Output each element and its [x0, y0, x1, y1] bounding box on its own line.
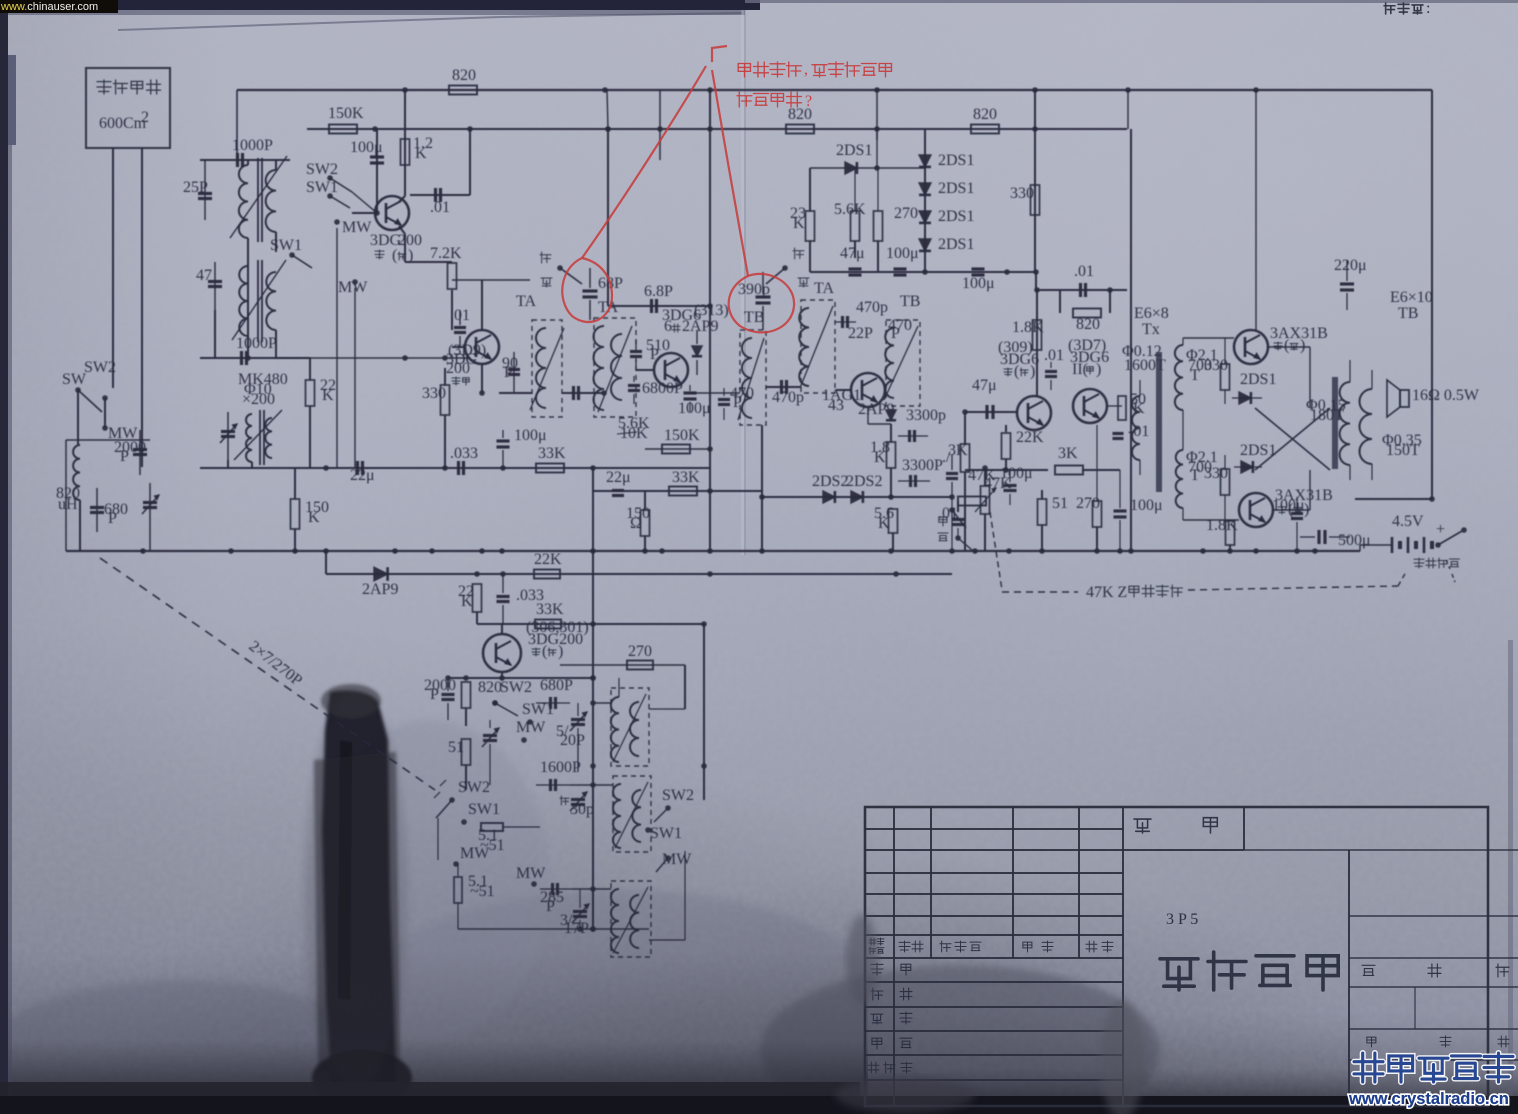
svg-text:1.8K: 1.8K — [1206, 517, 1238, 534]
svg-text:E6×8: E6×8 — [1134, 305, 1169, 322]
svg-text:33K: 33K — [672, 469, 700, 486]
svg-text:~51: ~51 — [470, 883, 495, 900]
svg-text:2DS1: 2DS1 — [938, 152, 974, 169]
svg-text:(: ( — [542, 643, 547, 660]
svg-text:.01: .01 — [1044, 347, 1064, 364]
svg-text:2000: 2000 — [114, 439, 146, 456]
svg-text:22K: 22K — [534, 551, 562, 568]
svg-text:51: 51 — [1052, 495, 1068, 512]
svg-text:Ω: Ω — [630, 515, 642, 532]
svg-text:TB: TB — [744, 309, 764, 326]
svg-text:.01: .01 — [1074, 263, 1094, 280]
svg-text:T: T — [1190, 467, 1200, 484]
svg-text:3300p: 3300p — [906, 407, 946, 424]
svg-text:SW2: SW2 — [458, 779, 490, 796]
svg-text:?: ? — [805, 93, 812, 110]
svg-text:-01: -01 — [1128, 423, 1149, 440]
svg-text:www.chinauser.com: www.chinauser.com — [0, 1, 98, 13]
svg-text:P: P — [108, 510, 117, 527]
svg-text:SW2: SW2 — [84, 359, 116, 376]
svg-text::: : — [1426, 0, 1430, 17]
svg-text:uH: uH — [58, 496, 78, 513]
svg-text:MW: MW — [460, 845, 490, 862]
svg-text:(: ( — [392, 247, 397, 264]
svg-text:): ) — [1096, 361, 1101, 378]
svg-text:3K: 3K — [948, 442, 968, 459]
svg-text:7.2K: 7.2K — [430, 245, 462, 262]
svg-text:6800P: 6800P — [642, 380, 683, 397]
svg-text:2DS1: 2DS1 — [1240, 371, 1276, 388]
svg-text:E6×10: E6×10 — [1390, 289, 1433, 306]
svg-text:SW2: SW2 — [662, 787, 694, 804]
svg-text:220μ: 220μ — [1334, 257, 1367, 274]
svg-text:150T: 150T — [1386, 442, 1420, 459]
svg-text:100μ: 100μ — [350, 139, 383, 156]
svg-text:): ) — [558, 643, 563, 660]
svg-text:K: K — [1133, 400, 1145, 417]
svg-text:330: 330 — [1010, 185, 1034, 202]
svg-text:): ) — [1030, 363, 1035, 380]
svg-text:51: 51 — [448, 739, 464, 756]
svg-text:(313): (313) — [694, 302, 729, 319]
svg-text:2DS1: 2DS1 — [836, 142, 872, 159]
svg-text:3AX31B: 3AX31B — [1270, 325, 1328, 342]
svg-text:33K: 33K — [536, 601, 564, 618]
svg-text:3K: 3K — [1058, 445, 1078, 462]
svg-text:820: 820 — [478, 679, 502, 696]
svg-text:5.6K: 5.6K — [834, 201, 866, 218]
svg-text:MW: MW — [516, 865, 546, 882]
svg-text:4.5V: 4.5V — [1392, 513, 1424, 530]
svg-text:100μ: 100μ — [962, 275, 995, 292]
svg-text:K: K — [461, 593, 473, 610]
svg-text:100μ: 100μ — [1130, 497, 1163, 514]
svg-text:200: 200 — [446, 360, 470, 377]
svg-text:470p: 470p — [772, 389, 804, 406]
svg-text:16Ω 0.5W: 16Ω 0.5W — [1412, 387, 1480, 404]
svg-text:22K: 22K — [1016, 429, 1044, 446]
svg-text:2DS2: 2DS2 — [846, 473, 882, 490]
svg-text:2AP9: 2AP9 — [682, 318, 718, 335]
svg-text:2DS2: 2DS2 — [812, 473, 848, 490]
svg-text:150K: 150K — [328, 105, 364, 122]
svg-text:TA: TA — [516, 293, 536, 310]
svg-text:II(: II( — [1072, 361, 1088, 378]
svg-text:www.crystalradio.cn: www.crystalradio.cn — [1348, 1090, 1509, 1108]
svg-text:100μ: 100μ — [514, 427, 547, 444]
svg-text:47: 47 — [196, 267, 212, 284]
svg-text:3DG200: 3DG200 — [528, 631, 583, 648]
svg-text:47μ: 47μ — [972, 377, 997, 394]
svg-text:K: K — [308, 509, 320, 526]
svg-text:20P: 20P — [560, 732, 585, 749]
svg-text:33K: 33K — [538, 445, 566, 462]
svg-text:,: , — [804, 61, 808, 78]
svg-text:22P: 22P — [848, 325, 873, 342]
svg-text:270: 270 — [628, 643, 652, 660]
svg-text:SW2: SW2 — [500, 679, 532, 696]
svg-text:P: P — [891, 325, 900, 342]
svg-text:MW: MW — [342, 219, 372, 236]
svg-text:47K Z: 47K Z — [1086, 584, 1127, 601]
svg-text:600Cm: 600Cm — [99, 115, 147, 132]
svg-text:1600P: 1600P — [540, 759, 581, 776]
svg-text:2DS1: 2DS1 — [938, 208, 974, 225]
svg-text:43: 43 — [828, 397, 844, 414]
svg-text:330: 330 — [422, 385, 446, 402]
svg-text:P: P — [504, 364, 513, 381]
svg-text:47μ: 47μ — [840, 245, 865, 262]
svg-text:6.8P: 6.8P — [644, 283, 673, 300]
svg-text:.01: .01 — [430, 199, 450, 216]
svg-text:22μ: 22μ — [606, 469, 631, 486]
svg-text:P: P — [430, 686, 439, 703]
svg-text:820: 820 — [973, 106, 997, 123]
svg-text:3300P: 3300P — [902, 457, 943, 474]
svg-text:2000: 2000 — [424, 677, 456, 694]
svg-text:×200: ×200 — [242, 391, 275, 408]
svg-text:K: K — [415, 145, 427, 162]
svg-text:P: P — [546, 898, 555, 915]
svg-text:.01: .01 — [938, 505, 958, 522]
svg-text:K: K — [878, 515, 890, 532]
svg-text:SW1: SW1 — [468, 801, 500, 818]
svg-text:SW1: SW1 — [650, 825, 682, 842]
svg-text:1.8K: 1.8K — [1012, 319, 1044, 336]
svg-text:+: + — [1436, 521, 1445, 538]
svg-text:500μ: 500μ — [1338, 532, 1371, 549]
svg-text:270: 270 — [894, 205, 918, 222]
svg-text:820: 820 — [452, 67, 476, 84]
svg-text:2DS1: 2DS1 — [938, 180, 974, 197]
svg-text:1000P: 1000P — [232, 137, 273, 154]
svg-text:TB: TB — [1398, 305, 1418, 322]
svg-text:SW1: SW1 — [306, 179, 338, 196]
svg-text:100μ: 100μ — [678, 400, 711, 417]
svg-text:K: K — [793, 215, 805, 232]
svg-text:680P: 680P — [540, 677, 573, 694]
svg-text:2DS1: 2DS1 — [938, 236, 974, 253]
svg-text:25P: 25P — [183, 179, 208, 196]
svg-text:390p: 390p — [738, 281, 770, 298]
svg-text:TB: TB — [900, 293, 920, 310]
svg-text:6: 6 — [664, 318, 672, 335]
svg-text:1000P: 1000P — [236, 335, 277, 352]
svg-text:.033: .033 — [450, 445, 478, 462]
svg-text:SW1: SW1 — [270, 237, 302, 254]
svg-text:100μ: 100μ — [1272, 497, 1305, 514]
svg-text:470p: 470p — [856, 299, 888, 316]
svg-text:SW2: SW2 — [306, 161, 338, 178]
svg-text:820: 820 — [1076, 316, 1100, 333]
svg-text:(: ( — [1014, 363, 1019, 380]
svg-text:180T: 180T — [1310, 407, 1344, 424]
svg-text:SW1: SW1 — [522, 701, 554, 718]
svg-text:MW: MW — [338, 279, 368, 296]
svg-text:Tx: Tx — [1142, 321, 1160, 338]
svg-text:P: P — [120, 448, 129, 465]
svg-text:2: 2 — [141, 109, 149, 126]
svg-text:3 P 5: 3 P 5 — [1166, 911, 1198, 928]
svg-text:100μ: 100μ — [1000, 465, 1033, 482]
svg-text:T: T — [1190, 367, 1200, 384]
svg-text:(: ( — [1284, 337, 1289, 354]
svg-text:2AP9: 2AP9 — [362, 581, 398, 598]
svg-text:SW: SW — [62, 371, 87, 388]
svg-text:150K: 150K — [664, 427, 700, 444]
svg-text:100μ: 100μ — [886, 245, 919, 262]
svg-text:): ) — [1300, 337, 1305, 354]
svg-text:30p: 30p — [570, 801, 594, 818]
svg-text:K: K — [322, 387, 334, 404]
svg-text:TA: TA — [814, 280, 834, 297]
svg-text:22μ: 22μ — [350, 467, 375, 484]
svg-text:K: K — [874, 449, 886, 466]
